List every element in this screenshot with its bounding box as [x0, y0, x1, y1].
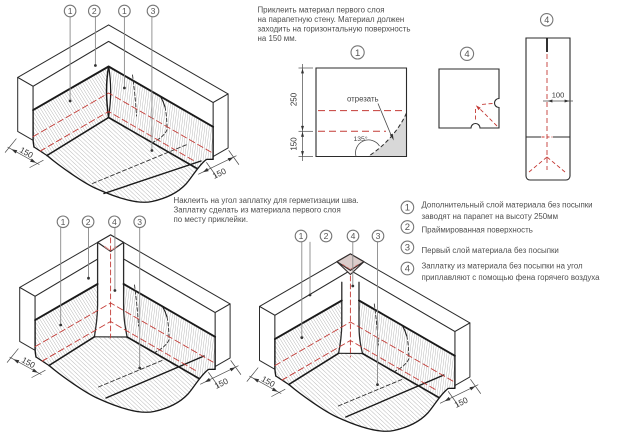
- svg-text:4: 4: [405, 264, 410, 275]
- svg-text:отрезать: отрезать: [347, 95, 379, 104]
- svg-text:2: 2: [92, 6, 97, 16]
- svg-text:100: 100: [552, 91, 565, 100]
- svg-text:на парапетную стену. Материал: на парапетную стену. Материал должен: [258, 15, 405, 24]
- svg-text:2: 2: [86, 217, 91, 227]
- svg-text:Первый слой материала без посы: Первый слой материала без посыпки: [422, 246, 559, 255]
- svg-text:2: 2: [405, 222, 410, 233]
- svg-text:Заплатку из материала без посы: Заплатку из материала без посыпки на уго…: [422, 262, 584, 271]
- svg-text:135°: 135°: [354, 135, 368, 143]
- svg-text:по месту приклейки.: по месту приклейки.: [174, 215, 249, 224]
- svg-text:1: 1: [355, 48, 360, 59]
- svg-text:4: 4: [464, 49, 469, 60]
- svg-text:приплавляют с помощью фена гор: приплавляют с помощью фена горячего возд…: [422, 273, 601, 282]
- svg-text:4: 4: [544, 15, 549, 25]
- svg-text:1: 1: [122, 6, 127, 16]
- svg-text:3: 3: [405, 243, 410, 254]
- svg-text:заводят на парапет на высоту 2: заводят на парапет на высоту 250мм: [422, 212, 559, 221]
- svg-text:3: 3: [137, 217, 142, 227]
- svg-text:1: 1: [299, 231, 304, 241]
- svg-text:Праймированная поверхность: Праймированная поверхность: [422, 226, 533, 235]
- svg-text:заходить на горизонтальную пов: заходить на горизонтальную поверхность: [258, 25, 411, 34]
- svg-text:4: 4: [112, 217, 117, 227]
- svg-text:Заплатку сделать из материала: Заплатку сделать из материала первого сл…: [174, 206, 341, 215]
- svg-text:3: 3: [376, 231, 381, 241]
- svg-text:Приклеить материал первого сло: Приклеить материал первого слоя: [258, 5, 385, 14]
- svg-text:Наклеить на угол заплатку для: Наклеить на угол заплатку для герметизац…: [174, 196, 359, 205]
- svg-text:1: 1: [61, 217, 66, 227]
- svg-text:250: 250: [290, 92, 299, 106]
- svg-text:1: 1: [405, 203, 410, 214]
- svg-text:3: 3: [151, 6, 156, 16]
- svg-text:Дополнительный слой материала: Дополнительный слой материала без посыпк…: [422, 201, 593, 210]
- svg-text:150: 150: [290, 137, 299, 151]
- svg-text:на 150 мм.: на 150 мм.: [258, 34, 297, 43]
- svg-text:2: 2: [324, 231, 329, 241]
- svg-text:1: 1: [68, 6, 73, 16]
- svg-text:4: 4: [351, 231, 356, 241]
